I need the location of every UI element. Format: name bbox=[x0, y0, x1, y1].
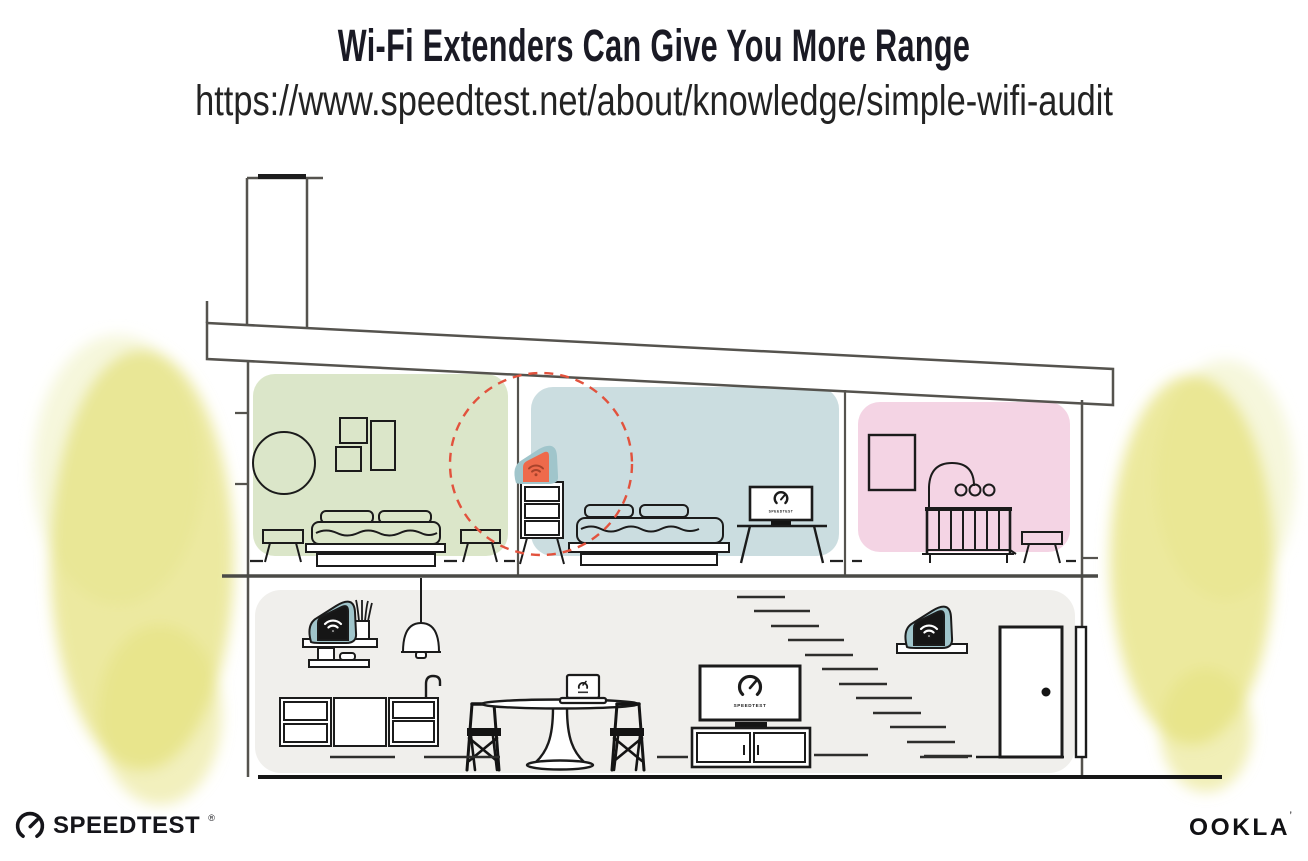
foliage-right bbox=[1110, 360, 1295, 792]
tv-screen-label: SPEEDTEST bbox=[734, 703, 767, 708]
speedtest-gauge-icon bbox=[14, 810, 46, 842]
chimney bbox=[247, 174, 323, 329]
infographic-page: Wi-Fi Extenders Can Give You More Range … bbox=[0, 0, 1308, 861]
wifi-extender-bedroom bbox=[514, 446, 558, 484]
ookla-wordmark: OOKLA bbox=[1189, 814, 1290, 842]
door-knob bbox=[1042, 688, 1051, 697]
ookla-logo: OOKLA’ bbox=[1190, 814, 1292, 842]
laptop bbox=[560, 675, 606, 703]
ookla-trademark-tick: ’ bbox=[1290, 810, 1292, 822]
foliage-left bbox=[33, 335, 234, 805]
left-wall-ticks bbox=[235, 413, 248, 484]
tv-screen-label: SPEEDTEST bbox=[769, 510, 794, 514]
sidelight-window bbox=[1076, 627, 1086, 757]
tv-console bbox=[692, 728, 810, 767]
tv-living-room: SPEEDTEST bbox=[700, 666, 800, 727]
speedtest-wordmark: SPEEDTEST bbox=[53, 812, 200, 840]
speedtest-logo: SPEEDTEST® bbox=[14, 810, 215, 842]
house-illustration: SPEEDTEST bbox=[0, 0, 1308, 861]
registered-mark: ® bbox=[208, 813, 215, 823]
